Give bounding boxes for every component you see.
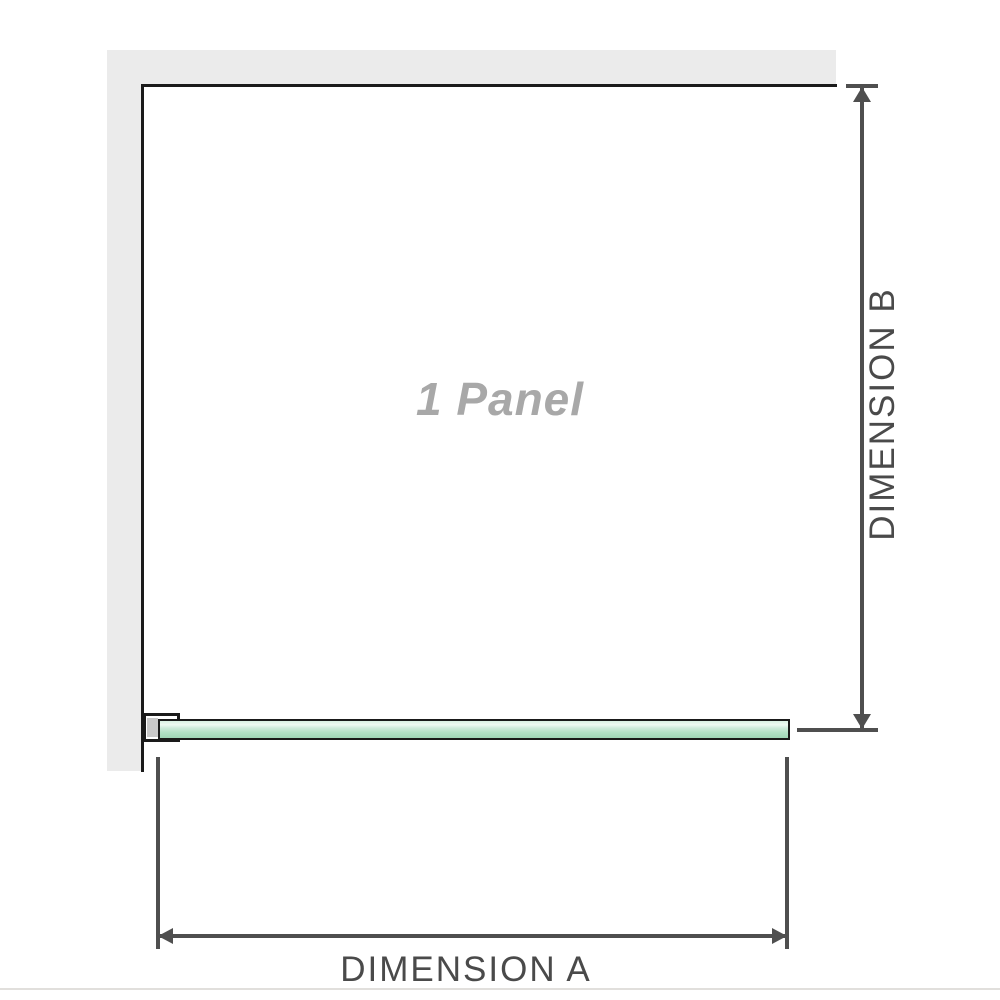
wall-face-line-top [141, 84, 837, 87]
wall-left-bar [107, 50, 141, 771]
dimension-b-label: DIMENSION B [863, 264, 903, 564]
dimension-a-label: DIMENSION A [266, 950, 666, 990]
panel-count-label: 1 Panel [300, 372, 700, 426]
dimension-a-line [160, 934, 785, 938]
wall-face-line-left [141, 84, 144, 772]
shower-panel-diagram: 1 Panel DIMENSION B DIMENSION A [0, 0, 1000, 1000]
arrow-left-icon [158, 928, 173, 944]
glass-panel-plan [158, 719, 790, 740]
dimension-a-right-extension [785, 757, 789, 949]
arrow-down-icon [853, 714, 871, 729]
page-bottom-edge-line [0, 988, 1000, 990]
dimension-a-left-extension [156, 757, 160, 949]
arrow-up-icon [853, 87, 871, 102]
wall-top-bar [107, 50, 836, 84]
arrow-right-icon [772, 928, 787, 944]
wall-bracket-insert [147, 718, 158, 737]
